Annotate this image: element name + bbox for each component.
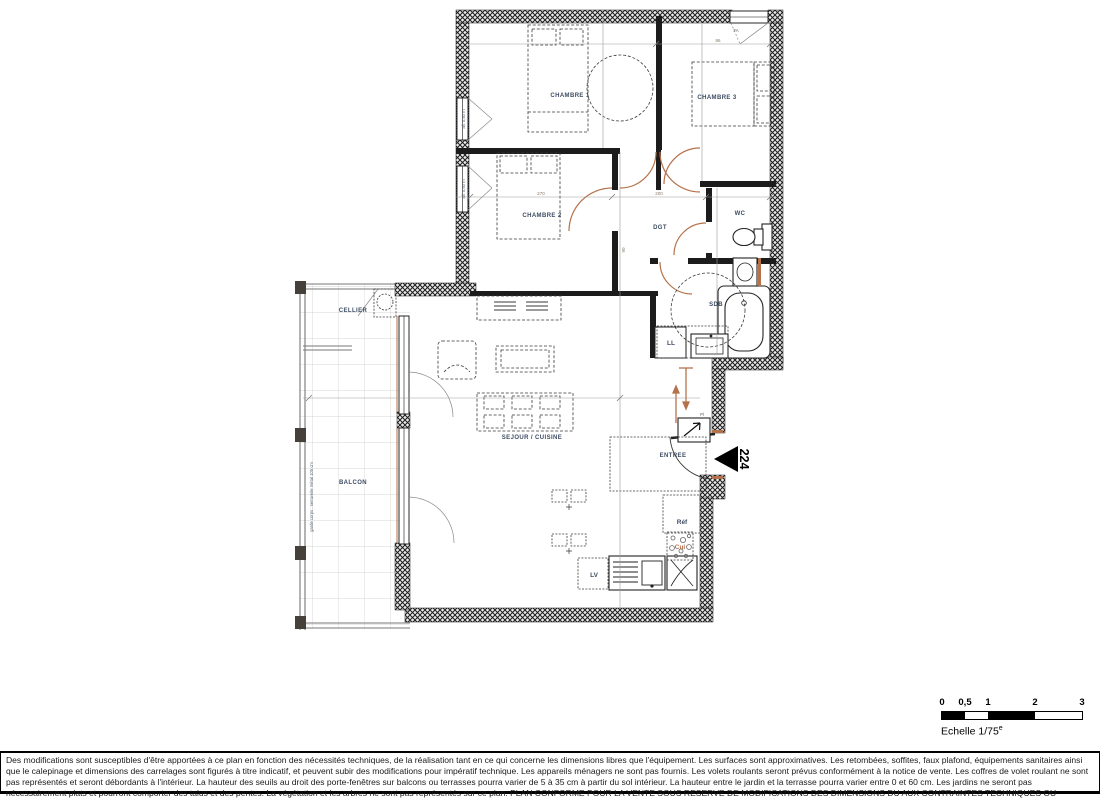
bed-chambre2: [497, 153, 560, 239]
dim-86: 86: [715, 38, 721, 43]
bed-chambre3: [692, 62, 774, 126]
room-label-balcon: BALCON: [339, 480, 367, 486]
scale-bar: 0 0,5 1 2 3 Echelle 1/75e: [938, 697, 1088, 742]
kitchen-sink-unit: [609, 556, 665, 590]
window-balcony-1: [399, 316, 453, 417]
floor-plan-sheet: CHAMBRE 1 CHAMBRE 2 CHAMBRE 3 WC SDB DGT…: [0, 0, 1100, 800]
scale-tick-05: 0,5: [958, 697, 971, 708]
electrical-panel: [678, 418, 710, 442]
fridge-box: [663, 495, 700, 533]
bed-chambre1: [528, 25, 588, 132]
room-label-sdb: SDB: [709, 302, 723, 308]
sill-label-1: all. 0,50 m: [461, 109, 466, 129]
closet-label: Pl: [700, 412, 704, 417]
appliance-label-lv: LV: [590, 572, 598, 579]
guardrail-label: garde corps : serrurerie métal 105 cm: [309, 462, 314, 532]
scale-caption-sup: e: [999, 725, 1003, 732]
fixtures: [609, 224, 772, 590]
scale-caption: Echelle 1/75e: [941, 725, 1003, 738]
room-label-wc: WC: [735, 211, 746, 217]
armchair: [438, 341, 476, 379]
toilet: [733, 224, 772, 250]
washbasin-wc: [733, 258, 761, 286]
window-balcony-2: [399, 428, 454, 544]
scale-caption-text: Echelle 1/75: [941, 726, 999, 738]
door-chambre2: [569, 188, 612, 231]
room-label-chambre3: CHAMBRE 3: [697, 95, 737, 101]
scale-bar-segments: [941, 711, 1083, 720]
room-label-cellier: CELLIER: [339, 308, 368, 314]
kitchen-corner-unit: [667, 556, 697, 590]
room-label-chambre1: CHAMBRE 1: [550, 93, 590, 99]
scale-tick-0: 0: [939, 697, 944, 708]
room-label-sejour: SEJOUR / CUISINE: [502, 435, 562, 441]
dining-table: [477, 393, 573, 431]
appliance-label-cui: Cui: [675, 544, 686, 551]
disclaimer-footer: Des modifications sont susceptibles d'êt…: [0, 751, 1100, 794]
window-fa-label: FA: [733, 28, 738, 33]
floor-plan-drawing: CHAMBRE 1 CHAMBRE 2 CHAMBRE 3 WC SDB DGT…: [0, 0, 1100, 800]
scale-tick-1: 1: [985, 697, 990, 708]
entrance-marker: 224: [714, 446, 751, 472]
scale-tick-2: 2: [1032, 697, 1037, 708]
room-label-chambre2: CHAMBRE 2: [522, 213, 562, 219]
sill-label-2: all. 0,50 m: [461, 179, 466, 199]
dim-90: 90: [621, 247, 626, 253]
apartment-number: 224: [737, 449, 751, 470]
appliance-label-ll: LL: [667, 340, 675, 347]
door-sdb: [660, 262, 692, 294]
ceiling-circle: [587, 55, 653, 121]
kitchen-counter: [477, 296, 561, 320]
entrance-triangle-icon: [714, 446, 738, 472]
duct-arrows: [673, 368, 693, 423]
dim-270: 270: [537, 191, 545, 196]
scale-tick-3: 3: [1079, 697, 1084, 708]
windows: [399, 11, 768, 544]
balcony: [295, 281, 410, 630]
entry-zone: [610, 437, 706, 491]
kitchen-island: [496, 346, 554, 372]
appliance-label-ref: Réf: [677, 519, 688, 526]
door-wc: [674, 223, 706, 255]
chairs: [552, 490, 586, 554]
dim-200: 200: [655, 191, 663, 196]
room-label-entree: ENTREE: [660, 453, 687, 459]
scale-ticks: 0 0,5 1 2 3: [938, 697, 1088, 709]
room-label-dgt: DGT: [653, 225, 667, 231]
door-chambre1: [620, 152, 656, 188]
sink-sdb: [691, 334, 728, 358]
